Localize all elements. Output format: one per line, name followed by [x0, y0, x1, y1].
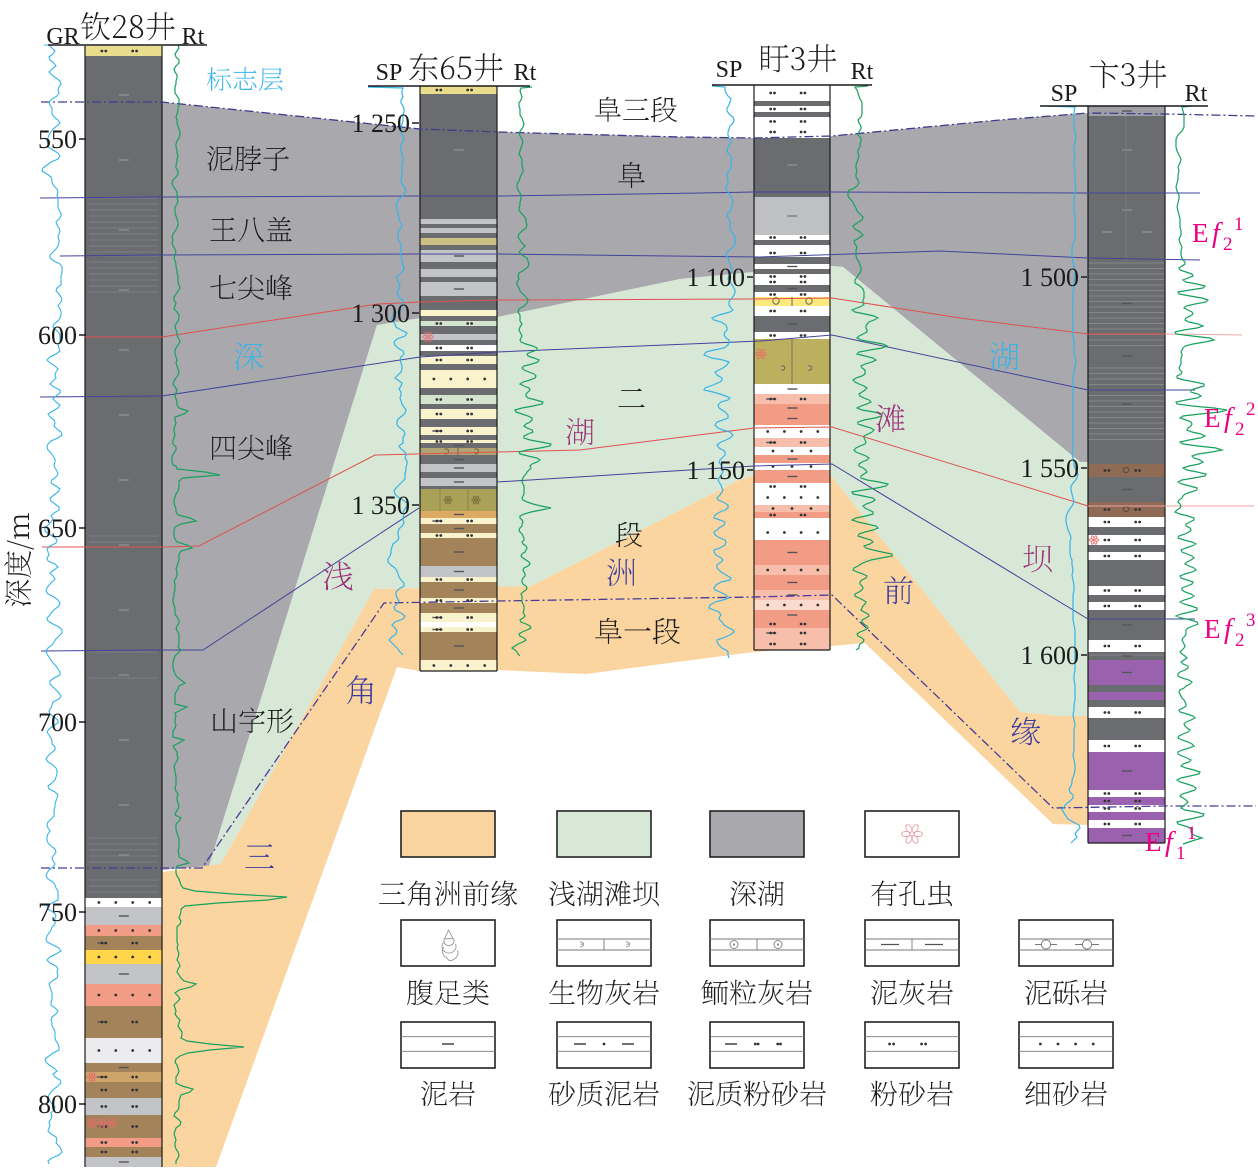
svg-text:550: 550	[38, 125, 77, 154]
svg-text:SP: SP	[376, 60, 403, 86]
svg-text:750: 750	[38, 898, 77, 927]
svg-text:Rt: Rt	[514, 60, 537, 86]
svg-text:Rt: Rt	[851, 59, 874, 85]
svg-text:1: 1	[1234, 214, 1244, 235]
svg-text:E: E	[1204, 614, 1221, 644]
svg-text:1 150: 1 150	[687, 456, 746, 485]
svg-text:Rt: Rt	[182, 24, 205, 50]
svg-text:700: 700	[38, 708, 77, 737]
svg-text:2: 2	[1246, 399, 1256, 420]
svg-text:E: E	[1204, 403, 1221, 433]
svg-text:SP: SP	[1051, 81, 1078, 107]
svg-text:1 250: 1 250	[352, 109, 411, 138]
svg-text:E: E	[1192, 218, 1209, 248]
svg-text:1 350: 1 350	[352, 491, 411, 520]
svg-text:2: 2	[1235, 419, 1245, 440]
svg-text:650: 650	[38, 514, 77, 543]
svg-text:1 500: 1 500	[1021, 263, 1080, 292]
svg-text:1: 1	[1187, 823, 1197, 844]
svg-text:SP: SP	[716, 57, 743, 83]
svg-text:1 100: 1 100	[687, 263, 746, 292]
svg-text:GR: GR	[46, 24, 79, 50]
svg-text:1 600: 1 600	[1021, 641, 1080, 670]
svg-text:1: 1	[1176, 843, 1186, 864]
svg-text:Rt: Rt	[1185, 81, 1208, 107]
svg-text:E: E	[1145, 827, 1162, 857]
svg-text:1 300: 1 300	[352, 299, 411, 328]
svg-text:2: 2	[1223, 234, 1233, 255]
svg-text:800: 800	[38, 1090, 77, 1119]
svg-text:600: 600	[38, 321, 77, 350]
svg-text:3: 3	[1246, 610, 1256, 631]
svg-text:1 550: 1 550	[1021, 454, 1080, 483]
svg-text:2: 2	[1235, 630, 1245, 651]
